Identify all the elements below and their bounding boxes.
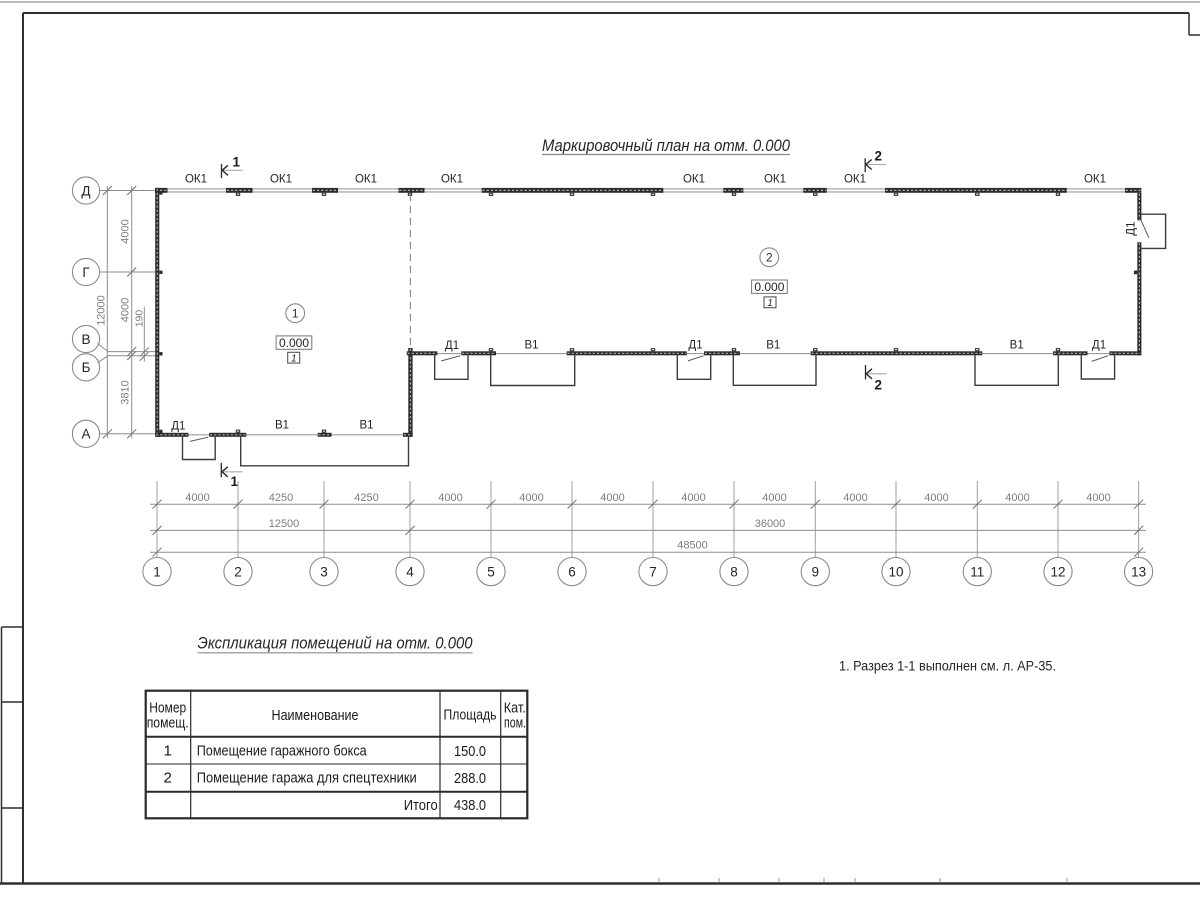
svg-text:1. Разрез 1-1 выполнен см. л.: 1. Разрез 1-1 выполнен см. л. АР-35. (839, 659, 1056, 674)
svg-text:4000: 4000 (1086, 492, 1110, 504)
svg-text:ОК1: ОК1 (683, 174, 705, 186)
svg-text:11: 11 (970, 564, 984, 579)
svg-text:Экспликация помещений на отм.: Экспликация помещений на отм. 0.000 (198, 635, 474, 653)
svg-text:288.0: 288.0 (454, 770, 486, 787)
svg-text:пом.: пом. (504, 714, 526, 731)
svg-text:1: 1 (231, 474, 239, 489)
svg-text:2: 2 (874, 149, 882, 164)
svg-text:Площадь: Площадь (444, 706, 497, 723)
svg-text:8: 8 (730, 564, 738, 579)
svg-text:4000: 4000 (120, 219, 132, 243)
svg-text:Д1: Д1 (1126, 222, 1138, 236)
svg-text:4000: 4000 (681, 492, 705, 504)
svg-text:2: 2 (766, 252, 772, 264)
svg-text:0.000: 0.000 (754, 280, 784, 294)
svg-text:4000: 4000 (438, 492, 462, 504)
svg-text:4250: 4250 (269, 492, 293, 504)
svg-text:4000: 4000 (600, 492, 624, 504)
svg-text:В1: В1 (275, 420, 289, 432)
svg-text:2: 2 (234, 564, 242, 579)
svg-text:Итого: Итого (404, 797, 438, 814)
svg-text:36000: 36000 (755, 518, 786, 530)
svg-text:1: 1 (164, 742, 172, 759)
svg-text:Д: Д (81, 183, 90, 198)
svg-text:4000: 4000 (120, 298, 132, 322)
svg-text:2: 2 (874, 377, 882, 392)
svg-text:ОК1: ОК1 (764, 174, 786, 186)
svg-text:4000: 4000 (519, 492, 543, 504)
svg-text:12000: 12000 (96, 295, 108, 326)
svg-text:ОК1: ОК1 (844, 174, 866, 186)
svg-text:В1: В1 (359, 420, 373, 432)
svg-text:Маркировочный план на отм. 0.0: Маркировочный план на отм. 0.000 (542, 137, 791, 155)
svg-text:1: 1 (153, 564, 161, 579)
svg-text:13: 13 (1131, 564, 1146, 579)
svg-text:3810: 3810 (120, 380, 132, 404)
svg-text:Д1: Д1 (171, 420, 185, 432)
svg-text:Помещение гаражного бокса: Помещение гаражного бокса (197, 742, 368, 759)
svg-text:4000: 4000 (185, 492, 209, 504)
svg-text:помещ.: помещ. (147, 715, 189, 732)
svg-text:В1: В1 (1010, 339, 1024, 351)
svg-text:Д1: Д1 (1092, 339, 1106, 351)
svg-text:В: В (81, 332, 90, 347)
svg-text:В1: В1 (766, 339, 780, 351)
svg-text:Помещение гаража для спецтехни: Помещение гаража для спецтехники (197, 770, 417, 787)
svg-text:ОК1: ОК1 (185, 174, 207, 186)
svg-text:ОК1: ОК1 (355, 174, 377, 186)
svg-text:190: 190 (134, 310, 146, 328)
svg-text:12500: 12500 (269, 518, 300, 530)
svg-text:9: 9 (812, 564, 820, 579)
svg-text:А: А (81, 427, 90, 442)
svg-text:4000: 4000 (843, 492, 867, 504)
svg-text:12: 12 (1050, 564, 1065, 579)
svg-text:Б: Б (82, 360, 91, 375)
svg-text:Наименование: Наименование (272, 707, 359, 724)
svg-text:2: 2 (164, 770, 172, 787)
svg-text:Г: Г (82, 265, 90, 280)
svg-text:1: 1 (292, 308, 298, 320)
svg-text:7: 7 (649, 564, 657, 579)
svg-text:6: 6 (568, 564, 576, 579)
svg-text:1: 1 (233, 155, 241, 170)
svg-text:ОК1: ОК1 (441, 174, 463, 186)
svg-text:438.0: 438.0 (454, 797, 486, 814)
svg-text:4000: 4000 (1005, 492, 1029, 504)
svg-text:5: 5 (487, 564, 495, 579)
svg-text:Д1: Д1 (445, 340, 459, 352)
svg-text:ОК1: ОК1 (270, 174, 292, 186)
svg-text:3: 3 (320, 564, 328, 579)
svg-text:10: 10 (888, 564, 903, 579)
svg-text:4250: 4250 (354, 492, 378, 504)
svg-text:0.000: 0.000 (279, 336, 309, 350)
svg-text:В1: В1 (524, 339, 538, 351)
svg-text:48500: 48500 (677, 540, 708, 552)
svg-text:1: 1 (291, 353, 297, 364)
svg-text:150.0: 150.0 (454, 743, 486, 760)
svg-text:4000: 4000 (762, 492, 786, 504)
svg-text:ОК1: ОК1 (1084, 174, 1106, 186)
svg-text:Д1: Д1 (688, 339, 702, 351)
svg-text:4: 4 (406, 564, 414, 579)
svg-text:4000: 4000 (924, 492, 948, 504)
svg-text:1: 1 (767, 298, 773, 309)
